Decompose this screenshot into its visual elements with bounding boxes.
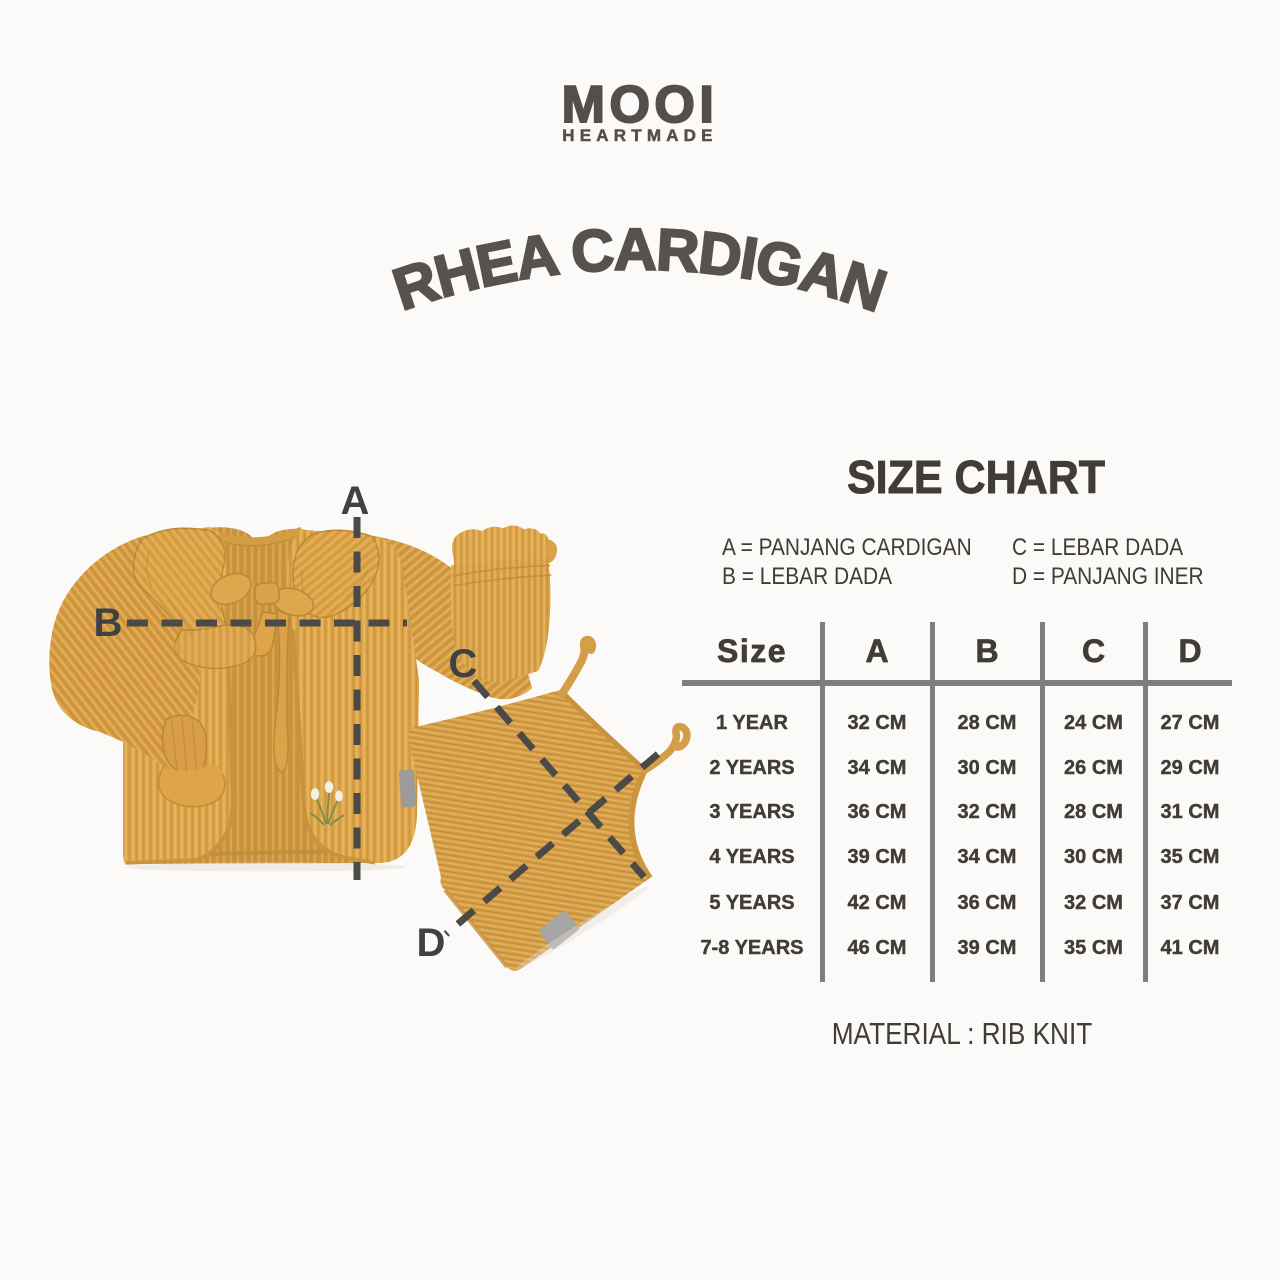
svg-text:C: C xyxy=(449,642,478,686)
svg-text:RHEA CARDIGAN: RHEA CARDIGAN xyxy=(385,217,895,325)
svg-text:D: D xyxy=(417,921,446,965)
svg-text:B: B xyxy=(94,601,123,645)
svg-text:A: A xyxy=(341,479,370,523)
